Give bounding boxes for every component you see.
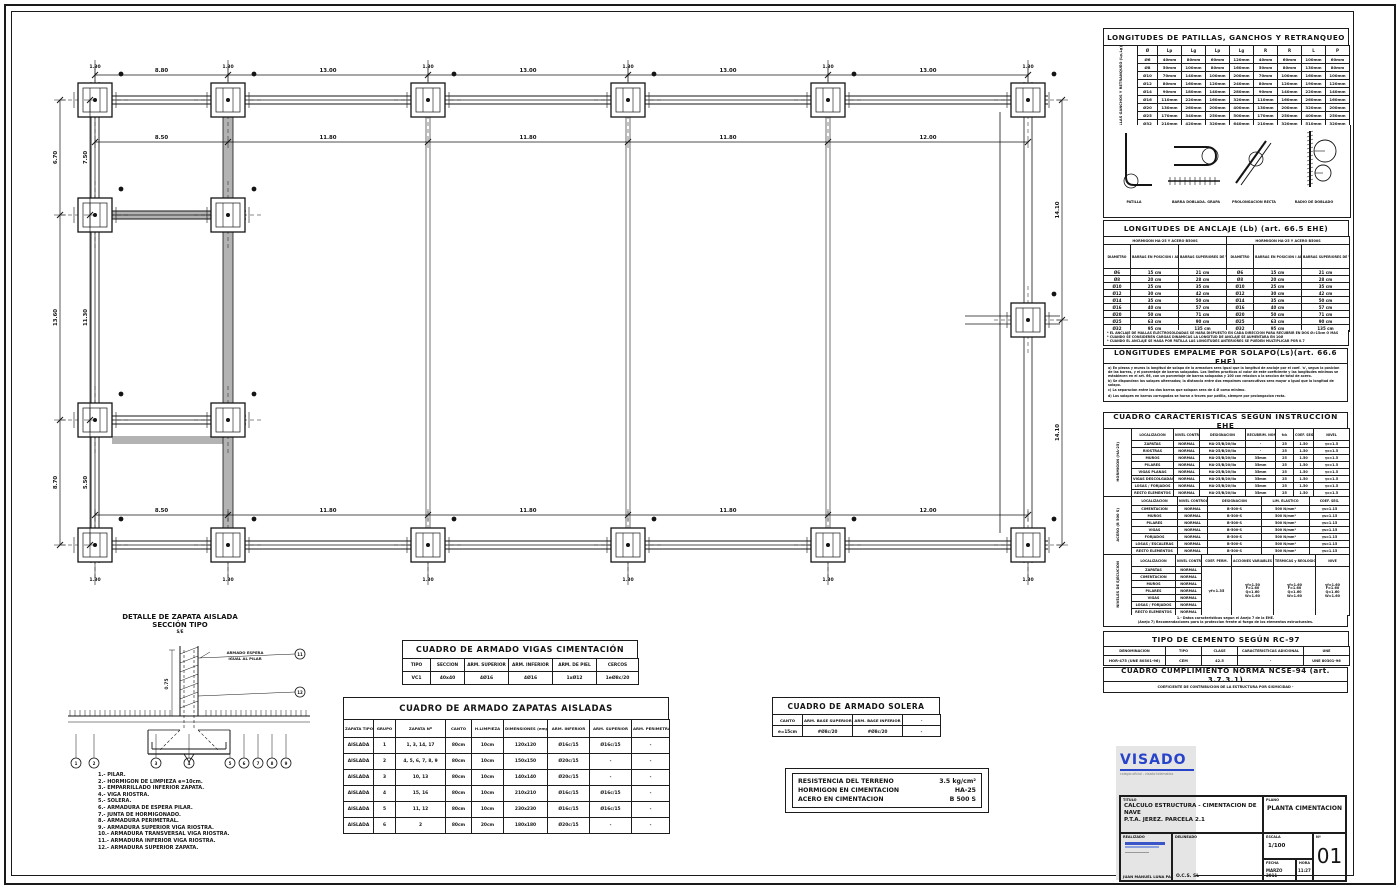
table-row: Ø1025 cm35 cmØ1025 cm35 cm [1104,283,1350,290]
table: DENOMINACIONTIPOCLASECARACTERISTICAS ADI… [1103,646,1350,666]
cell: PILARES [1132,520,1178,527]
dim-label: 13.60 [53,309,59,326]
dim-label: 11.80 [719,508,736,514]
vigas-cimentacion-table: CUADRO DE ARMADO VIGAS CIMENTACIÓNTIPOSE… [402,640,638,685]
cell: NORMAL [1178,506,1208,513]
cell: 140x140 [504,770,548,786]
table-row: VIGASNORMALB-500-S500 N/mm²γs=1.15 [1104,527,1350,534]
column-header: CANTO [773,715,803,726]
cell: HA-25/B/20/IIa [1200,483,1246,490]
cell: 21 cm [1179,269,1227,276]
ncse-title: CUADRO CUMPLIMIENTO NORMA NCSE-94 (art. … [1103,667,1348,682]
dim-label: 8.50 [155,135,169,141]
cell: LOSAS / FORJADOS [1132,483,1174,490]
cell: - [903,726,941,737]
cell: Ø25 [1227,318,1254,325]
cell: 25 [1276,476,1294,483]
table-row: Ø16110mm220mm160mm320mm110mm160mm260mm16… [1104,96,1350,104]
line [160,730,180,750]
line [1236,141,1266,183]
circle [226,213,230,217]
cell: MUROS [1132,513,1178,520]
cell: 50mm [1158,64,1182,72]
column-header: NIVEL CONTROL [1178,497,1208,506]
circle [252,392,257,397]
dim-label: RADIO DE DOBLADO [1295,200,1334,204]
dim-label: 13.00 [919,68,936,74]
cell: Ø16c/15 [590,738,632,754]
solapo-notes: a) En piezas y muros la longitud de sola… [1103,363,1348,402]
dim-label: 11 [297,652,303,657]
materials-note-label: RESISTENCIA DEL TERRENO [798,777,894,786]
cell: 260mm [1182,104,1206,112]
cell: 80cm [446,770,472,786]
cell: 80cm [446,802,472,818]
table-row: ZAPATASNORMALHA-25/B/20/IIa-251.50γc=1.5 [1104,441,1350,448]
cell: 2 [396,818,446,834]
tbody: DENOMINACIONTIPOCLASECARACTERISTICAS ADI… [1104,647,1350,666]
dim-label: 2 [93,761,96,766]
div: W=1.60 [1317,595,1348,599]
cell: HA-25/B/20/IIa [1200,469,1246,476]
column-header: BARRAS SUPERIORES DE VIGAS (POSICION II)… [1302,245,1350,269]
cell: 140mm [1326,88,1350,96]
cell: 50 cm [1254,311,1302,318]
materials-note-row: ACERO EN CIMENTACIONB 500 S [798,795,976,804]
cell: 120x120 [504,738,548,754]
cell: 1.50 [1294,476,1314,483]
cell: AISLADA [344,802,374,818]
tbody: NIVELES DE EJECUCIONLOCALIZACIONNIVEL CO… [1104,555,1350,616]
cell: γf=1.60F=1.60Q=1.60W=1.60 [1316,567,1350,616]
cell-label: REALIZADO [1121,834,1171,840]
cell: 140mm [1182,72,1206,80]
cell: NORMAL [1178,541,1208,548]
dim-label: 11.80 [319,508,336,514]
hora-cell: HORA11:27 [1296,859,1313,881]
cell: NORMAL [1178,527,1208,534]
cell: 200mm [1326,104,1350,112]
cell: 160mm [1302,72,1326,80]
column-header: L [1302,46,1326,56]
cell: Ø12 [1138,80,1158,88]
legend-item: 9.- ARMADURA SUPERIOR VIGA RIOSTRA. [98,825,318,832]
cell: 500 N/mm² [1262,520,1310,527]
cell: 5 [374,802,396,818]
cell: ZAPATAS [1132,441,1174,448]
materials-note-value: B 500 S [950,795,976,804]
cell: NORMAL [1174,448,1200,455]
dim-label: 1.30 [1022,577,1033,583]
dim-label: 11.80 [519,508,536,514]
tbody: HORMIGON (HA-25)LOCALIZACIONNIVEL CONTRO… [1104,429,1350,497]
cell: 57 cm [1179,304,1227,311]
cell: VIGAS PLANAS [1132,469,1174,476]
anclaje-table: LONGITUDES DE ANCLAJE (Lb) (art. 66.5 EH… [1103,220,1349,332]
legend-item: 2.- HORMIGON DE LIMPIEZA e=10cm. [98,779,318,786]
column-header: TIPO [403,659,431,672]
realizado-cell: REALIZADOJUAN MANUEL LUNA PAGOS [1120,833,1172,881]
table-row: Ø1070mm140mm100mm200mm70mm100mm160mm100m… [1104,72,1350,80]
cell: 25 [1276,448,1294,455]
cell: 10cm [472,754,504,770]
author-name: JUAN MANUEL LUNA PAGOS [1123,875,1172,879]
table-row: DENOMINACIONTIPOCLASECARACTERISTICAS ADI… [1104,647,1350,656]
table: PATILLAS GANCHOS Y RETRANQUEO (Lp,Lg)ØLp… [1103,45,1350,136]
cell: 320mm [1230,96,1254,104]
circle [652,72,657,77]
tbody: HORMIGON HA-25 Y ACERO B500SHORMIGON HA-… [1104,237,1350,332]
dim-label: 11.30 [83,309,89,326]
cell: VC1 [403,672,431,685]
cell: 120mm [1326,80,1350,88]
column-header: DESIGNACION [1200,429,1246,441]
column-header: LOCALIZACION [1132,555,1176,567]
cell: γs=1.15 [1310,520,1350,527]
tbody: ZAPATA TIPOGRUPOZAPATA NºCANTOH.LIMPIEZA… [344,720,670,834]
patillas-side-label: PATILLAS GANCHOS Y RETRANQUEO (Lp,Lg) [1104,46,1138,136]
cell: 30 cm [1131,290,1179,297]
cell: 80mm [1278,64,1302,72]
cell: 1.50 [1294,455,1314,462]
dim-label: 7.50 [83,151,89,165]
visado-rule [1120,769,1194,771]
solera-table: CUADRO DE ARMADO SOLERACANTOARM. BASE SU… [772,697,940,737]
cell: B-500-S [1208,513,1262,520]
circle [426,543,430,547]
cell: 110mm [1254,96,1278,104]
table-row: Ø1230 cm42 cmØ1230 cm42 cm [1104,290,1350,297]
cell: 150x150 [504,754,548,770]
cell: 25 [1276,455,1294,462]
cemento-table: TIPO DE CEMENTO SEGÚN RC-97DENOMINACIONT… [1103,631,1349,666]
legend-item: 1.- PILAR. [98,772,318,779]
cell: 60mm [1326,56,1350,64]
column-header: HORMIGON HA-25 Y ACERO B500S [1227,237,1350,245]
line [180,674,198,681]
cell: 35mm [1246,483,1276,490]
cell: AISLADA [344,754,374,770]
cell: γc=1.5 [1314,462,1350,469]
cell: Ø20c/15 [548,770,590,786]
span: PATILLAS GANCHOS Y RETRANQUEO (Lp,Lg) [1119,46,1123,134]
table-row: CIMENTACIONNORMALB-500-S500 N/mm²γs=1.15 [1104,506,1350,513]
zapatas-aisladas-table-title: CUADRO DE ARMADO ZAPATAS AISLADAS [343,697,669,719]
cell: 70mm [1254,72,1278,80]
cell: NORMAL [1174,455,1200,462]
cell: 90 cm [1179,318,1227,325]
column-header: ACCIONES VARIABLES [1232,555,1274,567]
column-header: Ø [1138,46,1158,56]
column-header: RECUBRIM. NOMINAL [1246,429,1276,441]
column-header: ARM. DE PIEL [553,659,597,672]
materials-note-value: HA-25 [955,786,976,795]
cell: 260mm [1302,96,1326,104]
column-header: UNE [1304,647,1350,656]
cell: Ø16c/15 [548,802,590,818]
table-row: AISLADA6280cm20cm180x180Ø20c/15-- [344,818,670,834]
cell: 220mm [1182,96,1206,104]
line [198,730,218,750]
cell: - [632,802,670,818]
cell: AISLADA [344,786,374,802]
visado-text: VISADO [1120,752,1194,768]
cell: 35 cm [1302,283,1350,290]
cell: 50 cm [1131,311,1179,318]
cell: #Ø8c/20 [853,726,903,737]
cell: 35mm [1246,469,1276,476]
cell: γc=1.5 [1314,476,1350,483]
column-header: LOCALIZACION [1132,497,1178,506]
detail-title-scale: S/E [60,629,300,634]
dim-label: PROLONGACION RECTA [1232,200,1276,204]
cell: B-500-S [1208,534,1262,541]
cell: PILARES [1132,462,1174,469]
cell: 40mm [1158,56,1182,64]
signature-logo-bar1 [1125,842,1165,845]
cell: AISLADA [344,770,374,786]
column-header: BARRAS EN POSICION I ADHER. BUENA (PATIL… [1131,245,1179,269]
cell: CIMENTACION [1132,506,1178,513]
cell: γf=1.60F=1.60Q=1.60W=1.60 [1274,567,1316,616]
column-header: NIVEL CONTROL [1176,555,1202,567]
table-row: RIOSTRASNORMALHA-25/B/20/IIa-251.50γc=1.… [1104,448,1350,455]
section-label: NIVELES DE EJECUCION [1104,555,1132,616]
column-header: TERMICAS y REOLOGICAS [1274,555,1316,567]
table-row: PILARESNORMALB-500-S500 N/mm²γs=1.15 [1104,520,1350,527]
cell: - [1246,441,1276,448]
note-line: c) La separacion entre las dos barras qu… [1108,388,1343,392]
cell: 50 cm [1302,297,1350,304]
cell: 160mm [1326,96,1350,104]
circle [226,98,230,102]
table-row: MUROSNORMALHA-25/B/20/IIa35mm251.50γc=1.… [1104,455,1350,462]
line [180,665,198,672]
patillas-table-title: LONGITUDES DE PATILLAS, GANCHOS Y RETRAN… [1103,28,1349,45]
cell: B-500-S [1208,520,1262,527]
table-row: Ø1435 cm50 cmØ1435 cm50 cm [1104,297,1350,304]
column-header: BARRAS EN POSICION I ADHER. BUENA (PATIL… [1254,245,1302,269]
cell: 160mm [1230,64,1254,72]
dim-label: 12.00 [919,135,936,141]
note-line: (Anejo 7) Recomendaciones para la protec… [1107,620,1344,624]
column-header: NIVEL [1314,429,1350,441]
path [1174,147,1216,165]
div: W=1.60 [1233,595,1272,599]
cell: 63 cm [1254,318,1302,325]
section-label: ACERO (B 500 S) [1104,497,1132,555]
materials-note-box: RESISTENCIA DEL TERRENO3.5 kg/cm²HORMIGO… [785,768,989,813]
cell: 250mm [1278,112,1302,120]
table: HORMIGON (HA-25)LOCALIZACIONNIVEL CONTRO… [1103,428,1350,497]
div: RESISTENCIA DEL TERRENO3.5 kg/cm²HORMIGO… [792,773,982,808]
cell: Ø16 [1138,96,1158,104]
cell: 40 cm [1131,304,1179,311]
cell: Ø14 [1227,297,1254,304]
cell: HA-25/B/20/IIa [1200,448,1246,455]
dim-label: 13.00 [719,68,736,74]
cell: NORMAL [1174,462,1200,469]
cell: γf=1.35 [1202,567,1232,616]
legend-item: 8.- ARMADURA PERIMETRAL. [98,818,318,825]
rect [112,436,226,444]
cell: B-500-S [1208,527,1262,534]
cell: 4 [374,786,396,802]
cell: γs=1.15 [1310,513,1350,520]
detail-legend: 1.- PILAR.2.- HORMIGON DE LIMPIEZA e=10c… [98,772,318,851]
circle [1026,543,1030,547]
cell: - [1238,656,1304,666]
circle [852,72,857,77]
cell: 71 cm [1302,311,1350,318]
column-header: Lg [1230,46,1254,56]
dim-label: 4 [188,761,191,766]
cell: HA-25/B/20/IIa [1200,476,1246,483]
cell: 90mm [1254,88,1278,96]
cell: ZAPATAS [1132,567,1176,574]
cell: FORJADOS [1132,534,1178,541]
table-row: PILARESNORMALHA-25/B/20/IIa35mm251.50γc=… [1104,462,1350,469]
cell: 10cm [472,786,504,802]
cell: γc=1.5 [1314,455,1350,462]
dim-label: 0.75 [164,678,170,689]
cell: 120mm [1206,80,1230,88]
cell: 10, 13 [396,770,446,786]
drawing-sheet: 1.301.301.301.301.301.301.301.301.301.30… [0,0,1400,889]
cell: NORMAL [1176,595,1202,602]
bar-bend-sketches: PATILLABARRA DOBLADA. GRAPAPROLONGACION … [1103,125,1351,218]
cell: 3 [374,770,396,786]
column-header: LOCALIZACION [1132,429,1174,441]
circle [119,517,124,522]
cell: 110mm [1158,96,1182,104]
circle [119,72,124,77]
cell: 80mm [1326,64,1350,72]
cell: 25 [1276,469,1294,476]
column-header: CANTO [446,720,472,738]
cell: 15, 16 [396,786,446,802]
cell: Ø8 [1227,276,1254,283]
cell: Ø25 [1104,318,1131,325]
table: ZAPATA TIPOGRUPOZAPATA NºCANTOH.LIMPIEZA… [343,719,670,834]
cell-label: DELINEADO [1173,834,1262,840]
cell: - [632,754,670,770]
dim-label: 11.80 [719,135,736,141]
cell: 30 cm [1254,290,1302,297]
cell: AISLADA [344,818,374,834]
cell: MUROS [1132,455,1174,462]
cell: 500 N/mm² [1262,513,1310,520]
column-header: H.LIMPIEZA [472,720,504,738]
cell: 4Ø16 [465,672,509,685]
cell: 80cm [446,818,472,834]
dim-label: 1.30 [422,577,433,583]
dim-label: 6.70 [53,151,59,165]
detail-title-line1: DETALLE DE ZAPATA AISLADA [60,613,300,621]
cell: NORMAL [1174,441,1200,448]
table-row: TIPOSECCIONARM. SUPERIORARM. INFERIORARM… [403,659,639,672]
cell: LOSAS / ESCALERAS [1132,541,1178,548]
circle [426,98,430,102]
column-header: NIVE [1316,555,1350,567]
cell: Ø25 [1138,112,1158,120]
cell: 500 N/mm² [1262,506,1310,513]
column-header: ARM. INFERIOR [509,659,553,672]
circle [1052,292,1057,297]
cell: Ø12 [1227,290,1254,297]
span: HORMIGON (HA-25) [1116,442,1120,482]
cell: NORMAL [1174,483,1200,490]
visado-stamp: VISADOcolegio oficial - visado telematic… [1120,752,1194,784]
cell: γs=1.15 [1310,527,1350,534]
cell: 100mm [1278,72,1302,80]
cell: γc=1.5 [1314,448,1350,455]
cell: 15 cm [1254,269,1302,276]
cell: - [632,738,670,754]
dim-label: 14.10 [1055,201,1061,218]
table: HORMIGON HA-25 Y ACERO B500SHORMIGON HA-… [1103,236,1350,332]
cell-label: Nº [1314,834,1345,840]
cell: Ø16c/15 [590,802,632,818]
cell: 57 cm [1302,304,1350,311]
table-row: VIGAS PLANASNORMALHA-25/B/20/IIa35mm251.… [1104,469,1350,476]
circle [226,418,230,422]
cell: 200mm [1206,104,1230,112]
cell: 1eØ8c/20 [597,672,639,685]
circle [1052,72,1057,77]
table-row: Ø2050 cm71 cmØ2050 cm71 cm [1104,311,1350,318]
cell: Ø6 [1227,269,1254,276]
cell: 25 [1276,462,1294,469]
cell: Ø6 [1104,269,1131,276]
cell: NORMAL [1178,520,1208,527]
column-header: BARRAS SUPERIORES DE VIGAS (POSICION II)… [1179,245,1227,269]
table-row: Ø25170mm340mm250mm500mm170mm250mm400mm25… [1104,112,1350,120]
cell: 60mm [1206,56,1230,64]
cell: 320mm [1302,104,1326,112]
legend-item: 7.- JUNTA DE HORMIGONADO. [98,812,318,819]
line [180,701,198,708]
column-header: fck [1276,429,1294,441]
column-header: ZAPATA Nº [396,720,446,738]
cell: 11, 12 [396,802,446,818]
cell: - [632,818,670,834]
cell: RIOSTRAS [1132,448,1174,455]
table-row: FORJADOSNORMALB-500-S500 N/mm²γs=1.15 [1104,534,1350,541]
cell: 21 cm [1302,269,1350,276]
table-row: HORMIGON (HA-25)LOCALIZACIONNIVEL CONTRO… [1104,429,1350,441]
dim-label: 7 [257,761,260,766]
cell: 50mm [1254,64,1278,72]
visado-caption: colegio oficial - visado telematico [1120,772,1194,776]
cell: 160mm [1278,96,1302,104]
cell: 250mm [1326,112,1350,120]
cell: 80cm [446,754,472,770]
cell: 6 [374,818,396,834]
table-row: Ø1280mm160mm120mm240mm80mm120mm190mm120m… [1104,80,1350,88]
cell: 1xØ12 [553,672,597,685]
cell: Ø8 [1104,276,1131,283]
cell: Ø8 [1138,64,1158,72]
dim-label: 12.00 [919,508,936,514]
dim-label: 1.30 [622,577,633,583]
table-row: Ø1490mm180mm140mm280mm90mm140mm220mm140m… [1104,88,1350,96]
dim-label: 1.30 [89,577,100,583]
cell: Ø14 [1104,297,1131,304]
anclaje-notes: * EL ANCLAJE DE MALLAS ELECTROSOLDADAS S… [1103,330,1349,346]
cell: NORMAL [1176,567,1202,574]
fecha-cell: FECHAMARZO 2011 [1263,859,1296,881]
